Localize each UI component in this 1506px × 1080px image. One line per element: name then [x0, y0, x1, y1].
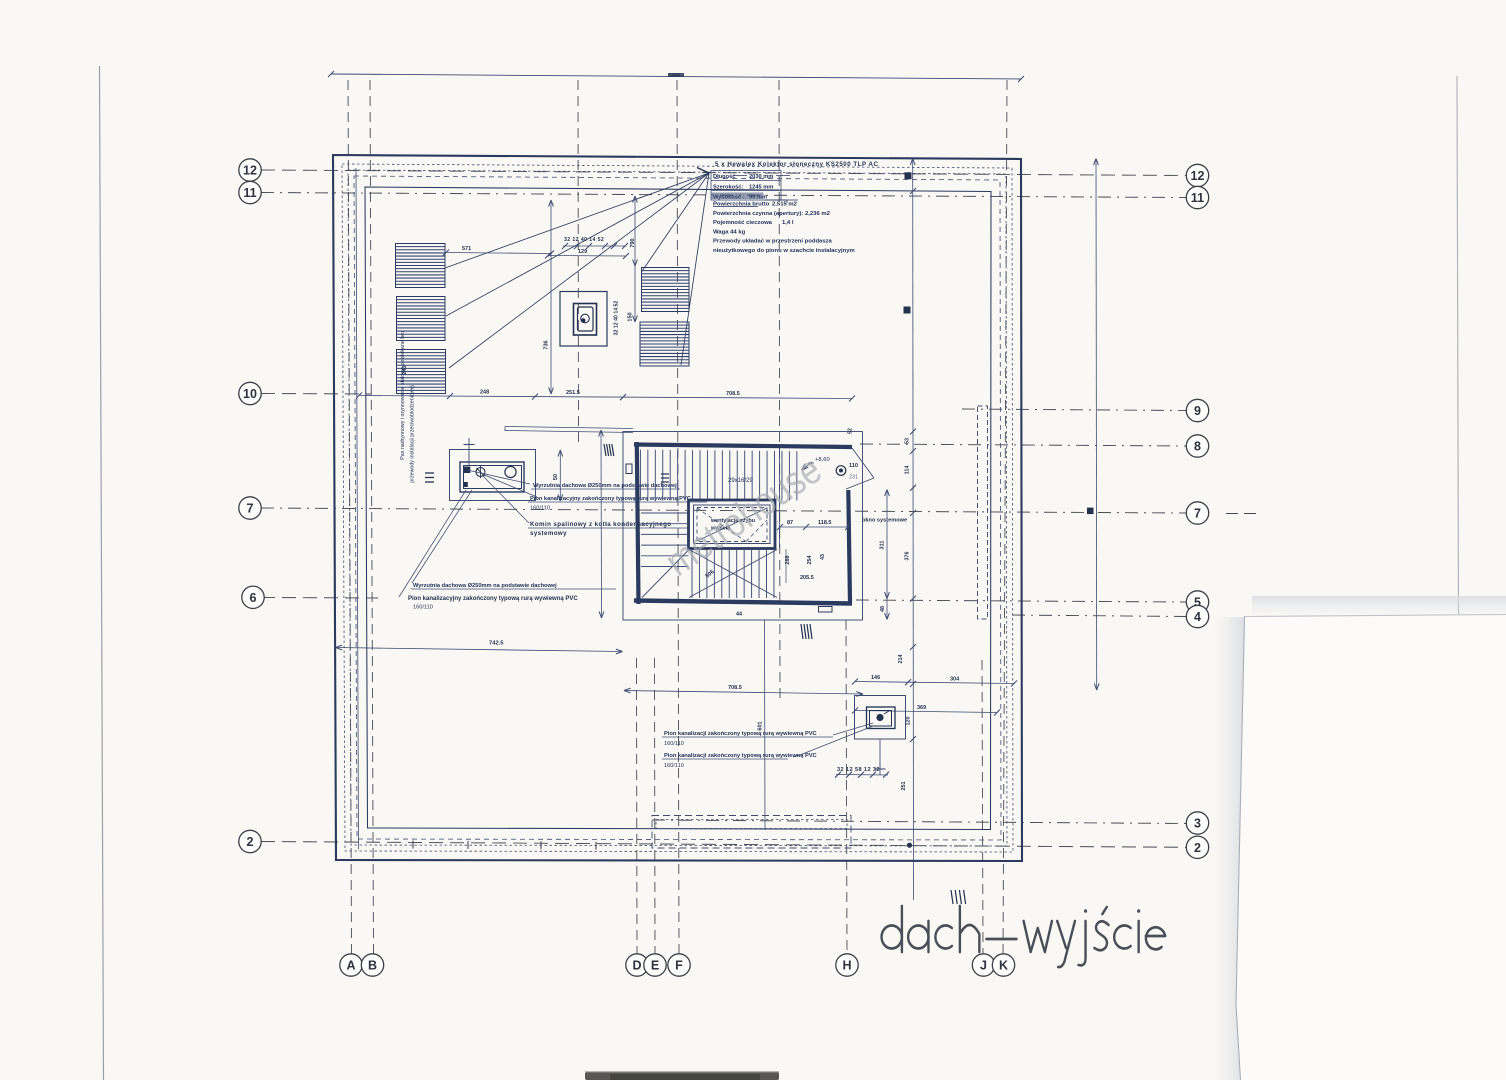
- svg-text:J: J: [980, 959, 987, 973]
- svg-text:248: 248: [480, 390, 489, 396]
- svg-text:7: 7: [247, 502, 254, 516]
- svg-text:129: 129: [578, 249, 587, 255]
- svg-text:7: 7: [1194, 507, 1201, 521]
- svg-text:736: 736: [544, 340, 550, 349]
- svg-text:150: 150: [628, 312, 634, 321]
- svg-text:120: 120: [906, 717, 912, 726]
- svg-text:231: 231: [849, 475, 858, 481]
- svg-text:160/110: 160/110: [664, 763, 684, 769]
- svg-text:10: 10: [243, 387, 257, 401]
- svg-text:Przewody układać w przestrzeni: Przewody układać w przestrzeni poddasza: [713, 239, 833, 245]
- svg-text:110: 110: [849, 463, 858, 469]
- svg-text:2,515 m2: 2,515 m2: [772, 202, 798, 208]
- svg-text:48: 48: [880, 606, 886, 612]
- svg-text:Pas nadrynnowy i orynnowanie s: Pas nadrynnowy i orynnowanie stalowe pow…: [400, 330, 406, 460]
- svg-text:304: 304: [950, 677, 960, 683]
- svg-text:3: 3: [1194, 817, 1201, 831]
- svg-text:376: 376: [905, 552, 911, 561]
- svg-text:742.5: 742.5: [489, 641, 504, 647]
- svg-text:H: H: [842, 959, 851, 973]
- svg-text:8: 8: [1194, 440, 1201, 454]
- svg-text:11: 11: [243, 186, 256, 200]
- svg-text:11: 11: [1191, 191, 1204, 205]
- svg-text:Wyrzutnia dachowa Ø250mm na po: Wyrzutnia dachowa Ø250mm na podstawie da…: [413, 583, 557, 589]
- svg-text:254: 254: [807, 556, 813, 565]
- svg-text:160/110: 160/110: [413, 605, 433, 611]
- svg-text:118.5: 118.5: [818, 520, 831, 526]
- svg-text:6: 6: [250, 591, 257, 605]
- svg-text:44: 44: [736, 612, 743, 618]
- svg-text:32 12 58 12 32: 32 12 58 12 32: [837, 767, 880, 773]
- svg-text:571: 571: [462, 246, 471, 252]
- svg-text:708.5: 708.5: [728, 685, 742, 691]
- svg-text:160/110: 160/110: [530, 506, 550, 512]
- svg-text:160/110: 160/110: [664, 741, 684, 747]
- svg-text:214: 214: [898, 655, 904, 664]
- svg-text:2: 2: [247, 835, 254, 849]
- svg-text:2: 2: [1194, 841, 1201, 855]
- svg-text:Pion kanalizacyjny zakończony: Pion kanalizacyjny zakończony typową rur…: [408, 596, 578, 602]
- svg-text:12: 12: [243, 164, 257, 178]
- svg-text:251.5: 251.5: [566, 390, 580, 396]
- svg-text:146: 146: [871, 675, 880, 681]
- svg-text:5 x Hewalex Kolektor słoneczny: 5 x Hewalex Kolektor słoneczny KS2500 TL…: [715, 161, 878, 168]
- svg-text:205.5: 205.5: [800, 575, 814, 581]
- svg-text:9: 9: [1194, 404, 1201, 418]
- svg-text:32 12 40 14 52: 32 12 40 14 52: [614, 301, 620, 336]
- svg-text:369: 369: [917, 705, 926, 711]
- svg-text:52: 52: [848, 428, 854, 434]
- svg-text:Długość: Długość: [713, 174, 735, 180]
- svg-text:1245 mm: 1245 mm: [749, 185, 773, 191]
- svg-text:F: F: [675, 959, 683, 973]
- svg-text:nieużytkowego do pionu w szach: nieużytkowego do pionu w szachcie instal…: [713, 248, 855, 254]
- svg-text:114: 114: [905, 466, 911, 475]
- svg-text:311: 311: [880, 541, 886, 550]
- svg-text:Pojemność cieczowa: Pojemność cieczowa: [713, 220, 773, 226]
- svg-text:87: 87: [787, 520, 793, 526]
- svg-text:Pion kanalizacyjny zakończony: Pion kanalizacyjny zakończony typową rur…: [530, 496, 691, 502]
- svg-text:K: K: [999, 959, 1008, 973]
- svg-text:251: 251: [901, 782, 907, 791]
- svg-text:Szerokość:: Szerokość:: [713, 185, 743, 191]
- svg-text:B: B: [368, 959, 377, 973]
- svg-text:29x16/29: 29x16/29: [728, 478, 753, 484]
- svg-text:53: 53: [905, 438, 911, 444]
- svg-text:okno systemowe: okno systemowe: [862, 518, 907, 524]
- svg-text:E: E: [651, 959, 659, 973]
- svg-text:32 12 40 14 52: 32 12 40 14 52: [564, 237, 604, 243]
- svg-text:1,4 l: 1,4 l: [782, 220, 794, 226]
- svg-text:601: 601: [758, 721, 764, 730]
- svg-text:D: D: [632, 959, 641, 973]
- svg-text:288: 288: [785, 556, 791, 565]
- svg-text:4: 4: [1194, 610, 1201, 624]
- svg-text:Komin spalinowy z kotła konden: Komin spalinowy z kotła kondensacyjnego: [530, 521, 671, 528]
- svg-text:790: 790: [630, 238, 636, 247]
- svg-text:A: A: [346, 959, 355, 973]
- svg-text:+8,60: +8,60: [815, 457, 830, 463]
- svg-text:708.5: 708.5: [726, 391, 740, 397]
- svg-text:12: 12: [1191, 169, 1205, 183]
- svg-text:systemowy: systemowy: [530, 530, 567, 537]
- svg-text:Powierzchnia czynna (apertury): Powierzchnia czynna (apertury): 2,236 m2: [713, 211, 831, 217]
- svg-text:Waga 44 kg: Waga 44 kg: [713, 229, 746, 235]
- svg-text:43: 43: [820, 554, 826, 560]
- svg-text:Pion kanalizacji zakończony ty: Pion kanalizacji zakończony typową rurą …: [664, 731, 817, 737]
- svg-text:Pion kanalizacji zakończony ty: Pion kanalizacji zakończony typową rurą …: [664, 753, 817, 759]
- svg-text:2030 mm: 2030 mm: [749, 174, 773, 180]
- svg-text:50: 50: [553, 474, 559, 480]
- svg-text:przewody instalacji przeciwobl: przewody instalacji przeciwoblodzeniowej: [410, 385, 416, 482]
